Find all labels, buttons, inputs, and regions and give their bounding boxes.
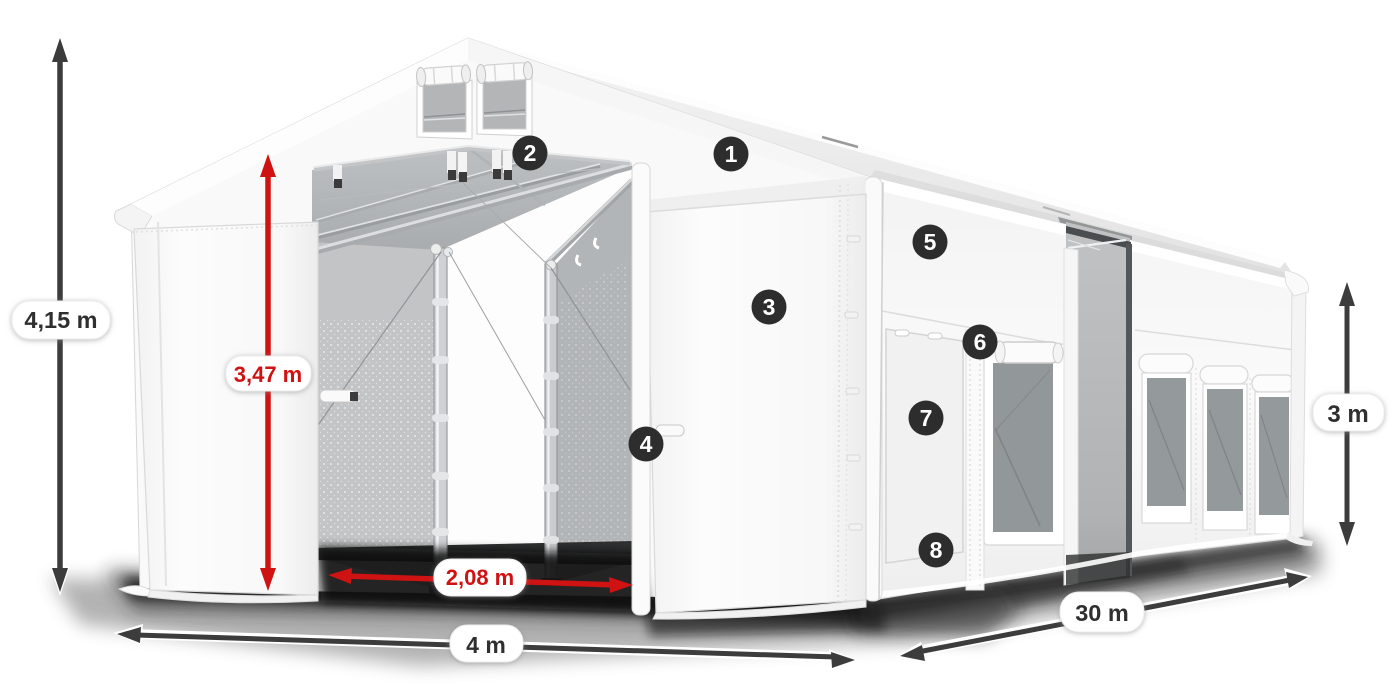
- svg-text:6: 6: [974, 329, 987, 355]
- svg-text:4,15 m: 4,15 m: [24, 307, 97, 333]
- svg-text:7: 7: [920, 405, 933, 431]
- svg-text:3: 3: [763, 294, 776, 320]
- svg-text:1: 1: [725, 141, 738, 167]
- svg-text:4: 4: [640, 431, 653, 457]
- svg-text:4 m: 4 m: [466, 632, 506, 658]
- svg-text:2,08 m: 2,08 m: [446, 565, 515, 590]
- svg-text:5: 5: [924, 229, 937, 255]
- svg-text:8: 8: [930, 537, 943, 563]
- svg-text:30 m: 30 m: [1075, 600, 1129, 626]
- svg-text:2: 2: [524, 140, 537, 166]
- svg-text:3,47 m: 3,47 m: [234, 362, 303, 387]
- svg-text:3 m: 3 m: [1327, 401, 1368, 428]
